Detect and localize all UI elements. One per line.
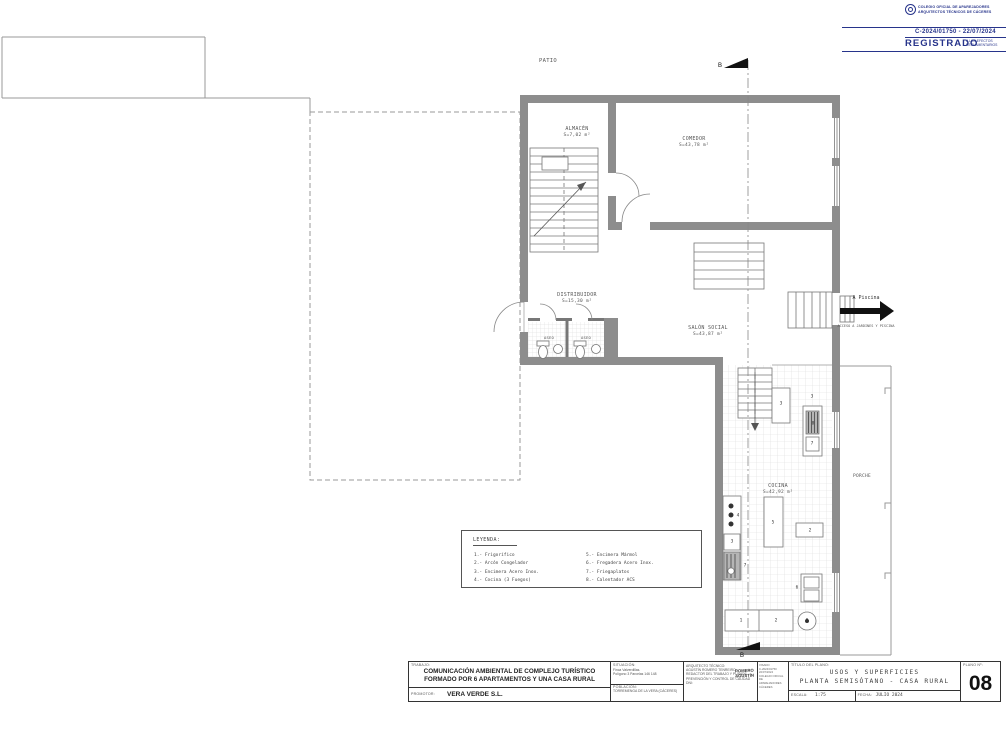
pool-arrow xyxy=(840,301,894,321)
architect-stamp-text: ROMERO AGUSTÍN xyxy=(735,668,754,679)
title-block-location-cell: SITUACIÓN: Finca Valverdillas. Polígono … xyxy=(611,662,684,701)
fixture-label: 1 xyxy=(740,619,743,624)
stamp-effects-text: A LOS EFECTOS REGLAMENTARIOS xyxy=(966,39,997,47)
pool-arrow-subtitle: ACCESO A JARDINES Y PISCINA xyxy=(838,324,895,328)
fixture-label: 5 xyxy=(772,521,775,526)
room-label-porche: PORCHE xyxy=(853,474,871,480)
promoter-row: PROMOTOR: VERA VERDE S.L. xyxy=(409,687,610,701)
room-label-patio: PATIO xyxy=(539,58,557,65)
promotor-value: VERA VERDE S.L. xyxy=(447,691,503,698)
room-label-aseo-1: ASEO xyxy=(544,335,554,340)
fixture-label: 2 xyxy=(775,619,778,624)
room-label-almacen: ALMACÉNS=7,02 m² xyxy=(563,126,590,139)
legend-item: 2.- Arcón Congelador xyxy=(474,560,539,568)
stamp-rule xyxy=(842,51,1006,52)
section-mark-b-bottom: B xyxy=(740,653,744,659)
legend-item: 7.- Friegaplatos xyxy=(586,569,654,577)
porch-boundary-lines xyxy=(840,366,891,655)
section-flag-top xyxy=(724,58,748,68)
fixture-label: 7 xyxy=(744,564,747,569)
room-label-cocina: COCINAS=42,92 m² xyxy=(763,483,793,496)
room-label-salon-social: SALÓN SOCIALS=43,87 m² xyxy=(688,325,728,338)
legend-item: 1.- Frigorífico xyxy=(474,552,539,560)
title-block-sheet-number-cell: PLANO Nº: 08 xyxy=(961,662,1000,701)
room-label-distribuidor: DISTRIBUIDORS=15,30 m² xyxy=(557,292,597,305)
fecha-value: JULIO 2024 xyxy=(876,693,903,698)
stamp-org-row: COLEGIO OFICIAL DE APAREJADORES ARQUITEC… xyxy=(905,4,1006,15)
legend-item: 3.- Encimera Acero Inox. xyxy=(474,569,539,577)
lounge-table xyxy=(694,243,764,289)
patio-boundary-lines xyxy=(2,37,520,480)
visa-stamp-text: VISADO C-2024/01750 22/07/2024 COLEGIO O… xyxy=(759,664,787,689)
legend-box: LEYENDA: 1.- Frigorífico 2.- Arcón Conge… xyxy=(461,530,702,588)
room-label-comedor: COMEDORS=43,78 m² xyxy=(679,136,709,149)
poblacion-value: TORREMENGA DE LA VERA (CÁCERES) xyxy=(613,689,681,693)
situacion-value: Finca Valverdillas. Polígono 3 Parcelas … xyxy=(613,668,681,676)
section-mark-b-top: B xyxy=(718,63,722,69)
fixture-label: 3 xyxy=(731,540,734,545)
promotor-label: PROMOTOR: xyxy=(411,692,435,696)
stamp-rule xyxy=(842,27,1006,28)
escala-label: ESCALA: xyxy=(791,693,808,697)
escala-value: 1:75 xyxy=(815,693,826,698)
fixture-label: 3 xyxy=(780,402,783,407)
stamp-org-name: COLEGIO OFICIAL DE APAREJADORES ARQUITEC… xyxy=(918,5,991,14)
plano-label: PLANO Nº: xyxy=(963,663,983,667)
fixture-label: 4 xyxy=(737,514,740,519)
title-block-visa-stamp-cell: VISADO C-2024/01750 22/07/2024 COLEGIO O… xyxy=(758,662,789,701)
fixture-label: 2 xyxy=(809,529,812,534)
title-block-drawing-title-cell: TÍTULO DEL PLANO: USOS Y SUPERFICIES PLA… xyxy=(789,662,961,701)
fixture-label: 8 xyxy=(812,422,815,427)
drawing-title: USOS Y SUPERFICIES PLANTA SEMISÓTANO - C… xyxy=(789,668,960,686)
situacion-label: SITUACIÓN: xyxy=(613,663,636,667)
pool-arrow-title: A Piscina xyxy=(852,295,879,301)
project-title: COMUNICACIÓN AMBIENTAL DE COMPLEJO TURÍS… xyxy=(409,668,610,684)
fecha-label: FECHA: xyxy=(858,693,872,697)
legend-item: 5.- Encimera Mármol xyxy=(586,552,654,560)
floor-plan-drawing xyxy=(0,0,1008,736)
fixture-label: 3 xyxy=(811,395,814,400)
titulo-label: TÍTULO DEL PLANO: xyxy=(791,663,829,667)
legend-title: LEYENDA: xyxy=(473,537,517,546)
legend-item: 8.- Calentador ACS xyxy=(586,577,654,585)
legend-column-right: 5.- Encimera Mármol 6.- Fregadera Acero … xyxy=(586,552,654,585)
storage-bench xyxy=(542,157,568,170)
college-seal-icon xyxy=(905,4,916,15)
title-block: TRABAJO: COMUNICACIÓN AMBIENTAL DE COMPL… xyxy=(408,661,1001,702)
trabajo-label: TRABAJO: xyxy=(411,663,430,667)
legend-column-left: 1.- Frigorífico 2.- Arcón Congelador 3.-… xyxy=(474,552,539,585)
fixture-label: 8 xyxy=(806,619,809,624)
fixture-label: 6 xyxy=(796,586,799,591)
title-block-architect-cell: ARQUITECTO TÉCNICO: AGUSTÍN ROMERO TENRE… xyxy=(684,662,758,701)
fixture-label: 7 xyxy=(811,442,814,447)
legend-item: 6.- Fregadera Acero Inox. xyxy=(586,560,654,568)
room-label-aseo-2: ASEO xyxy=(581,335,591,340)
legend-item: 4.- Cocina (3 Fuegos) xyxy=(474,577,539,585)
stamp-registry-number: C-2024/01750 - 22/07/2024 xyxy=(905,29,1006,35)
title-block-project-cell: TRABAJO: COMUNICACIÓN AMBIENTAL DE COMPL… xyxy=(409,662,611,701)
sheet-number: 08 xyxy=(961,672,1000,696)
drawing-sheet: PATIO ALMACÉNS=7,02 m² COMEDORS=43,78 m²… xyxy=(0,0,1008,736)
